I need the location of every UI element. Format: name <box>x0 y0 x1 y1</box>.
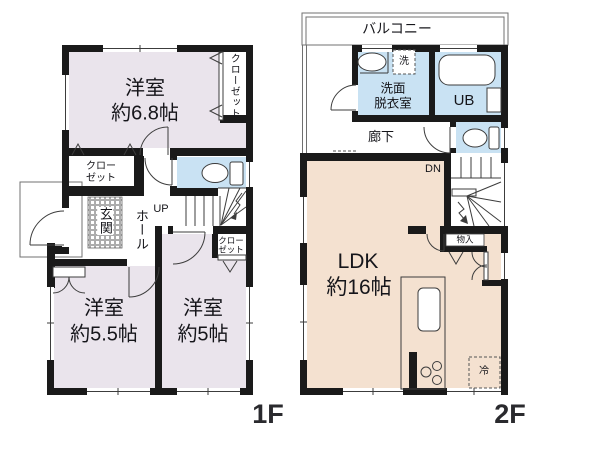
room-55-size: 約5.5帖 <box>70 325 138 346</box>
hall-label: ホール <box>134 209 148 251</box>
corridor-label: 廊下 <box>368 130 394 144</box>
ldk-name: LDK <box>338 251 379 273</box>
floorplan-canvas: 洋室 約6.8帖 クローゼット クロー ゼット 玄関 ホール UP クロー ゼッ… <box>0 0 600 450</box>
floorplan-drawing <box>0 0 600 450</box>
fridge-label: 冷 <box>479 367 489 378</box>
room-68-name: 洋室 <box>125 79 165 100</box>
closet-label-line2: ゼット <box>86 174 116 185</box>
balcony-label: バルコニー <box>362 22 432 37</box>
room-68-size: 約6.8帖 <box>111 104 179 125</box>
floor1-label: 1F <box>252 400 284 428</box>
closet-label-vertical: クローゼット <box>228 53 239 119</box>
washroom-label-line1: 洗面 <box>380 82 405 95</box>
room-55-name: 洋室 <box>84 299 124 320</box>
room-50-name: 洋室 <box>183 299 223 320</box>
room-50-size: 約5帖 <box>177 325 228 346</box>
closet-label-line1: クロー <box>86 162 116 173</box>
storage-label: 物入 <box>456 236 473 245</box>
entrance-label: 玄関 <box>97 207 113 235</box>
stairs-up-label: UP <box>153 204 168 216</box>
laundry-label: 洗 <box>399 57 409 68</box>
stairs-closet-label-line2: ゼット <box>218 246 244 255</box>
toilet-2f-icon <box>463 127 499 149</box>
unit-bath-label: UB <box>454 93 475 109</box>
stairs-down-label: DN <box>425 164 441 176</box>
washroom-label-line2: 脱衣室 <box>374 97 412 110</box>
ldk-size: 約16帖 <box>326 277 391 299</box>
floor2-label: 2F <box>494 400 526 428</box>
